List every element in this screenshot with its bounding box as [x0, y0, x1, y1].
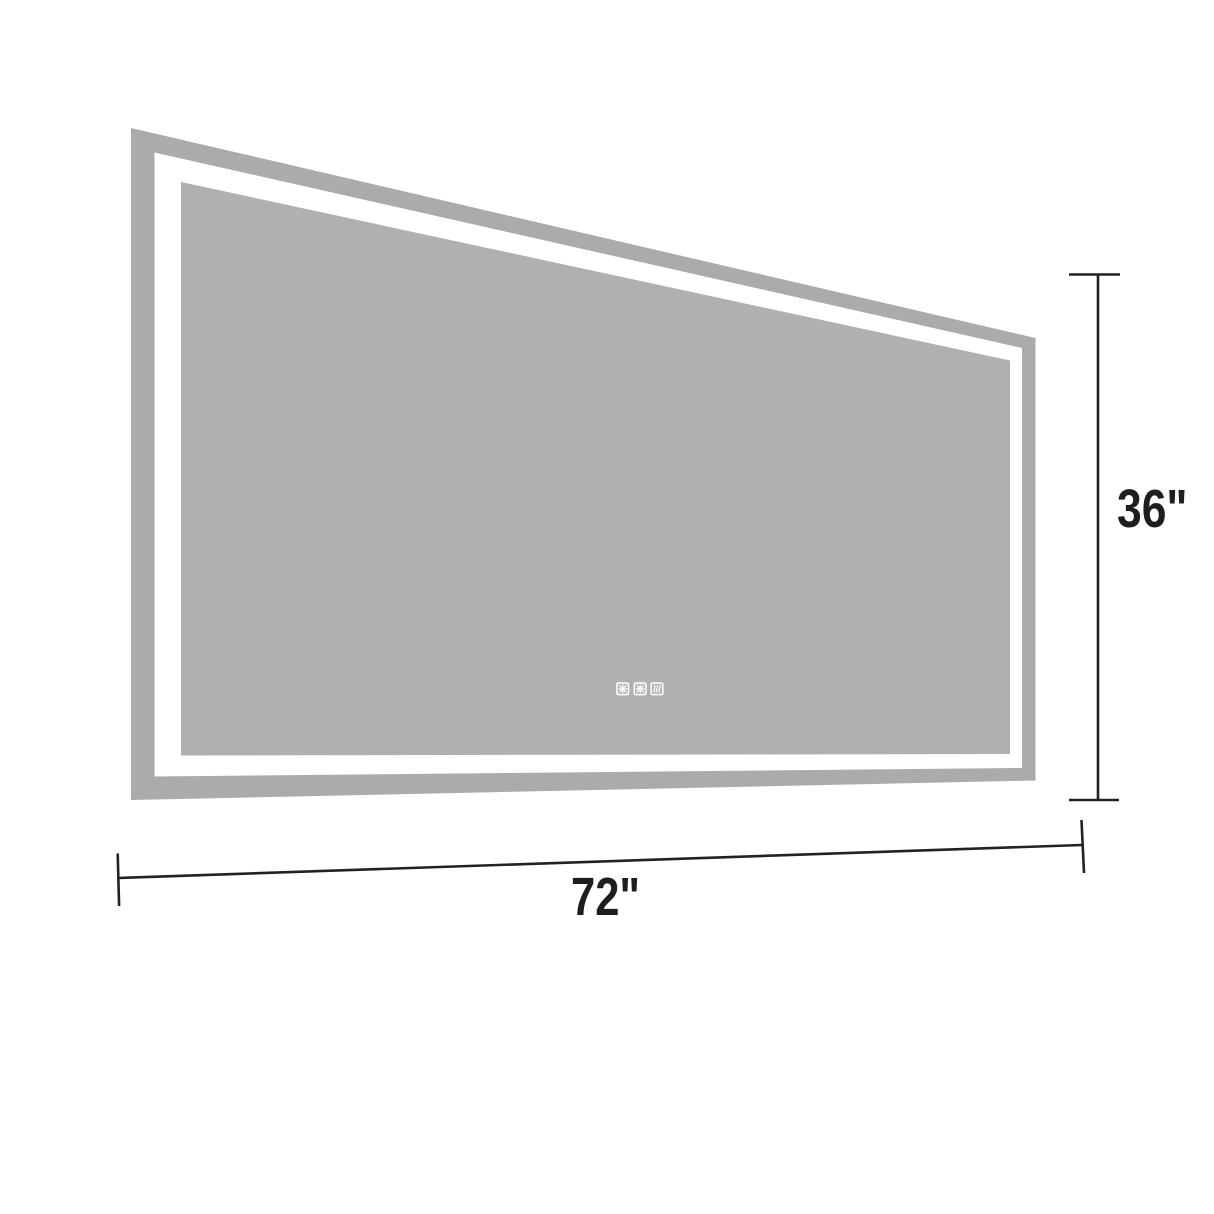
svg-text:36": 36": [1117, 480, 1188, 539]
svg-text:72": 72": [571, 868, 640, 927]
